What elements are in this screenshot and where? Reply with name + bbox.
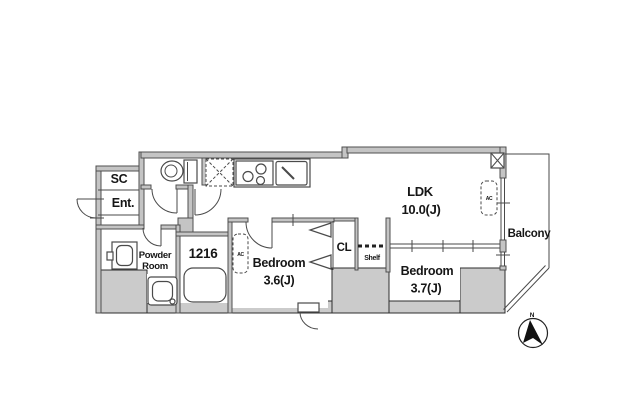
wall-right-mid: [500, 240, 506, 252]
bathroom-size-label: 1216: [189, 246, 219, 261]
powder-room-label-line2: Room: [142, 261, 168, 272]
bedroom1-exterior-door-panel: [298, 303, 319, 312]
wall-right-lower: [500, 266, 506, 270]
sc-label: SC: [111, 172, 128, 186]
toilet-icon: [161, 160, 197, 183]
wall-bedroom1-top-west: [228, 218, 248, 222]
ldk-name-label: LDK: [407, 184, 434, 199]
bedroom1-exterior-door-swing-icon: [300, 312, 318, 329]
wall-sc-top: [96, 166, 141, 171]
wall-exterior-left: [96, 166, 101, 313]
kitchen-counter: [234, 159, 310, 187]
balcony-edge: [505, 154, 549, 268]
washbasin-icon: [107, 242, 137, 269]
wall-exterior-top: [141, 152, 347, 158]
bedroom1-size-label: 3.6(J): [264, 274, 295, 288]
stove-icon: [236, 161, 273, 185]
ldk-size-label: 10.0(J): [401, 202, 440, 217]
entrance-door-swing-icon: [77, 199, 96, 218]
bedroom1-name-label: Bedroom: [253, 256, 306, 270]
bedroom2-size-label: 3.7(J): [411, 282, 442, 296]
wc-door-swing-icon: [152, 189, 177, 213]
structure-block-left: [96, 270, 147, 313]
bedroom2-name-label: Bedroom: [401, 264, 454, 278]
ldk-balcony-window: [501, 178, 505, 240]
hall-door-swing-icon: [195, 189, 221, 215]
structure-block-center: [332, 268, 389, 313]
powder-door-swing-icon: [143, 228, 161, 246]
entrance-label: Ent.: [112, 196, 134, 210]
wall-shelf-nook-east: [386, 218, 390, 272]
north-label: N: [530, 312, 535, 319]
wall-powder-top-west: [96, 225, 144, 229]
wall-bath-top: [176, 232, 232, 236]
ac-unit-bedroom-icon: AC: [233, 234, 248, 273]
wall-hall-divider: [188, 185, 193, 220]
pipe-space-icon: [491, 153, 504, 168]
wall-closet-top: [334, 218, 358, 221]
sliding-partition-line: [390, 244, 500, 248]
ac-label-bedroom: AC: [237, 252, 244, 258]
ac-unit-ldk-icon: AC: [481, 181, 497, 215]
shelf-label: Shelf: [364, 255, 381, 262]
bathtub-icon: [184, 268, 226, 302]
wall-ldk-top: [347, 147, 505, 153]
bedroom2-balcony-window: [501, 252, 505, 266]
compass: N: [519, 312, 548, 348]
wall-bedroom1-top-east: [272, 218, 334, 222]
wall-wc-bottom-left: [141, 185, 151, 189]
closet-label: CL: [337, 242, 352, 254]
washing-machine-icon: [148, 277, 177, 305]
floor-plan: AC AC N SC Ent. Powder Room 1216 CL Shel…: [0, 0, 640, 412]
ac-label-ldk: AC: [486, 196, 493, 202]
refrigerator-space-icon: [206, 159, 233, 186]
powder-room-label-line1: Powder: [139, 250, 172, 261]
structure-block-right: [460, 268, 505, 313]
wall-bedroom1-west: [228, 218, 232, 313]
wall-powder-top-east: [161, 225, 178, 229]
balcony-diagonal-railing: [504, 266, 550, 313]
wall-closet-east: [355, 218, 358, 270]
balcony-label: Balcony: [508, 228, 552, 240]
sink-icon: [276, 162, 307, 186]
floor-plan-drawing: AC AC N SC Ent. Powder Room 1216 CL Shel…: [0, 0, 640, 412]
